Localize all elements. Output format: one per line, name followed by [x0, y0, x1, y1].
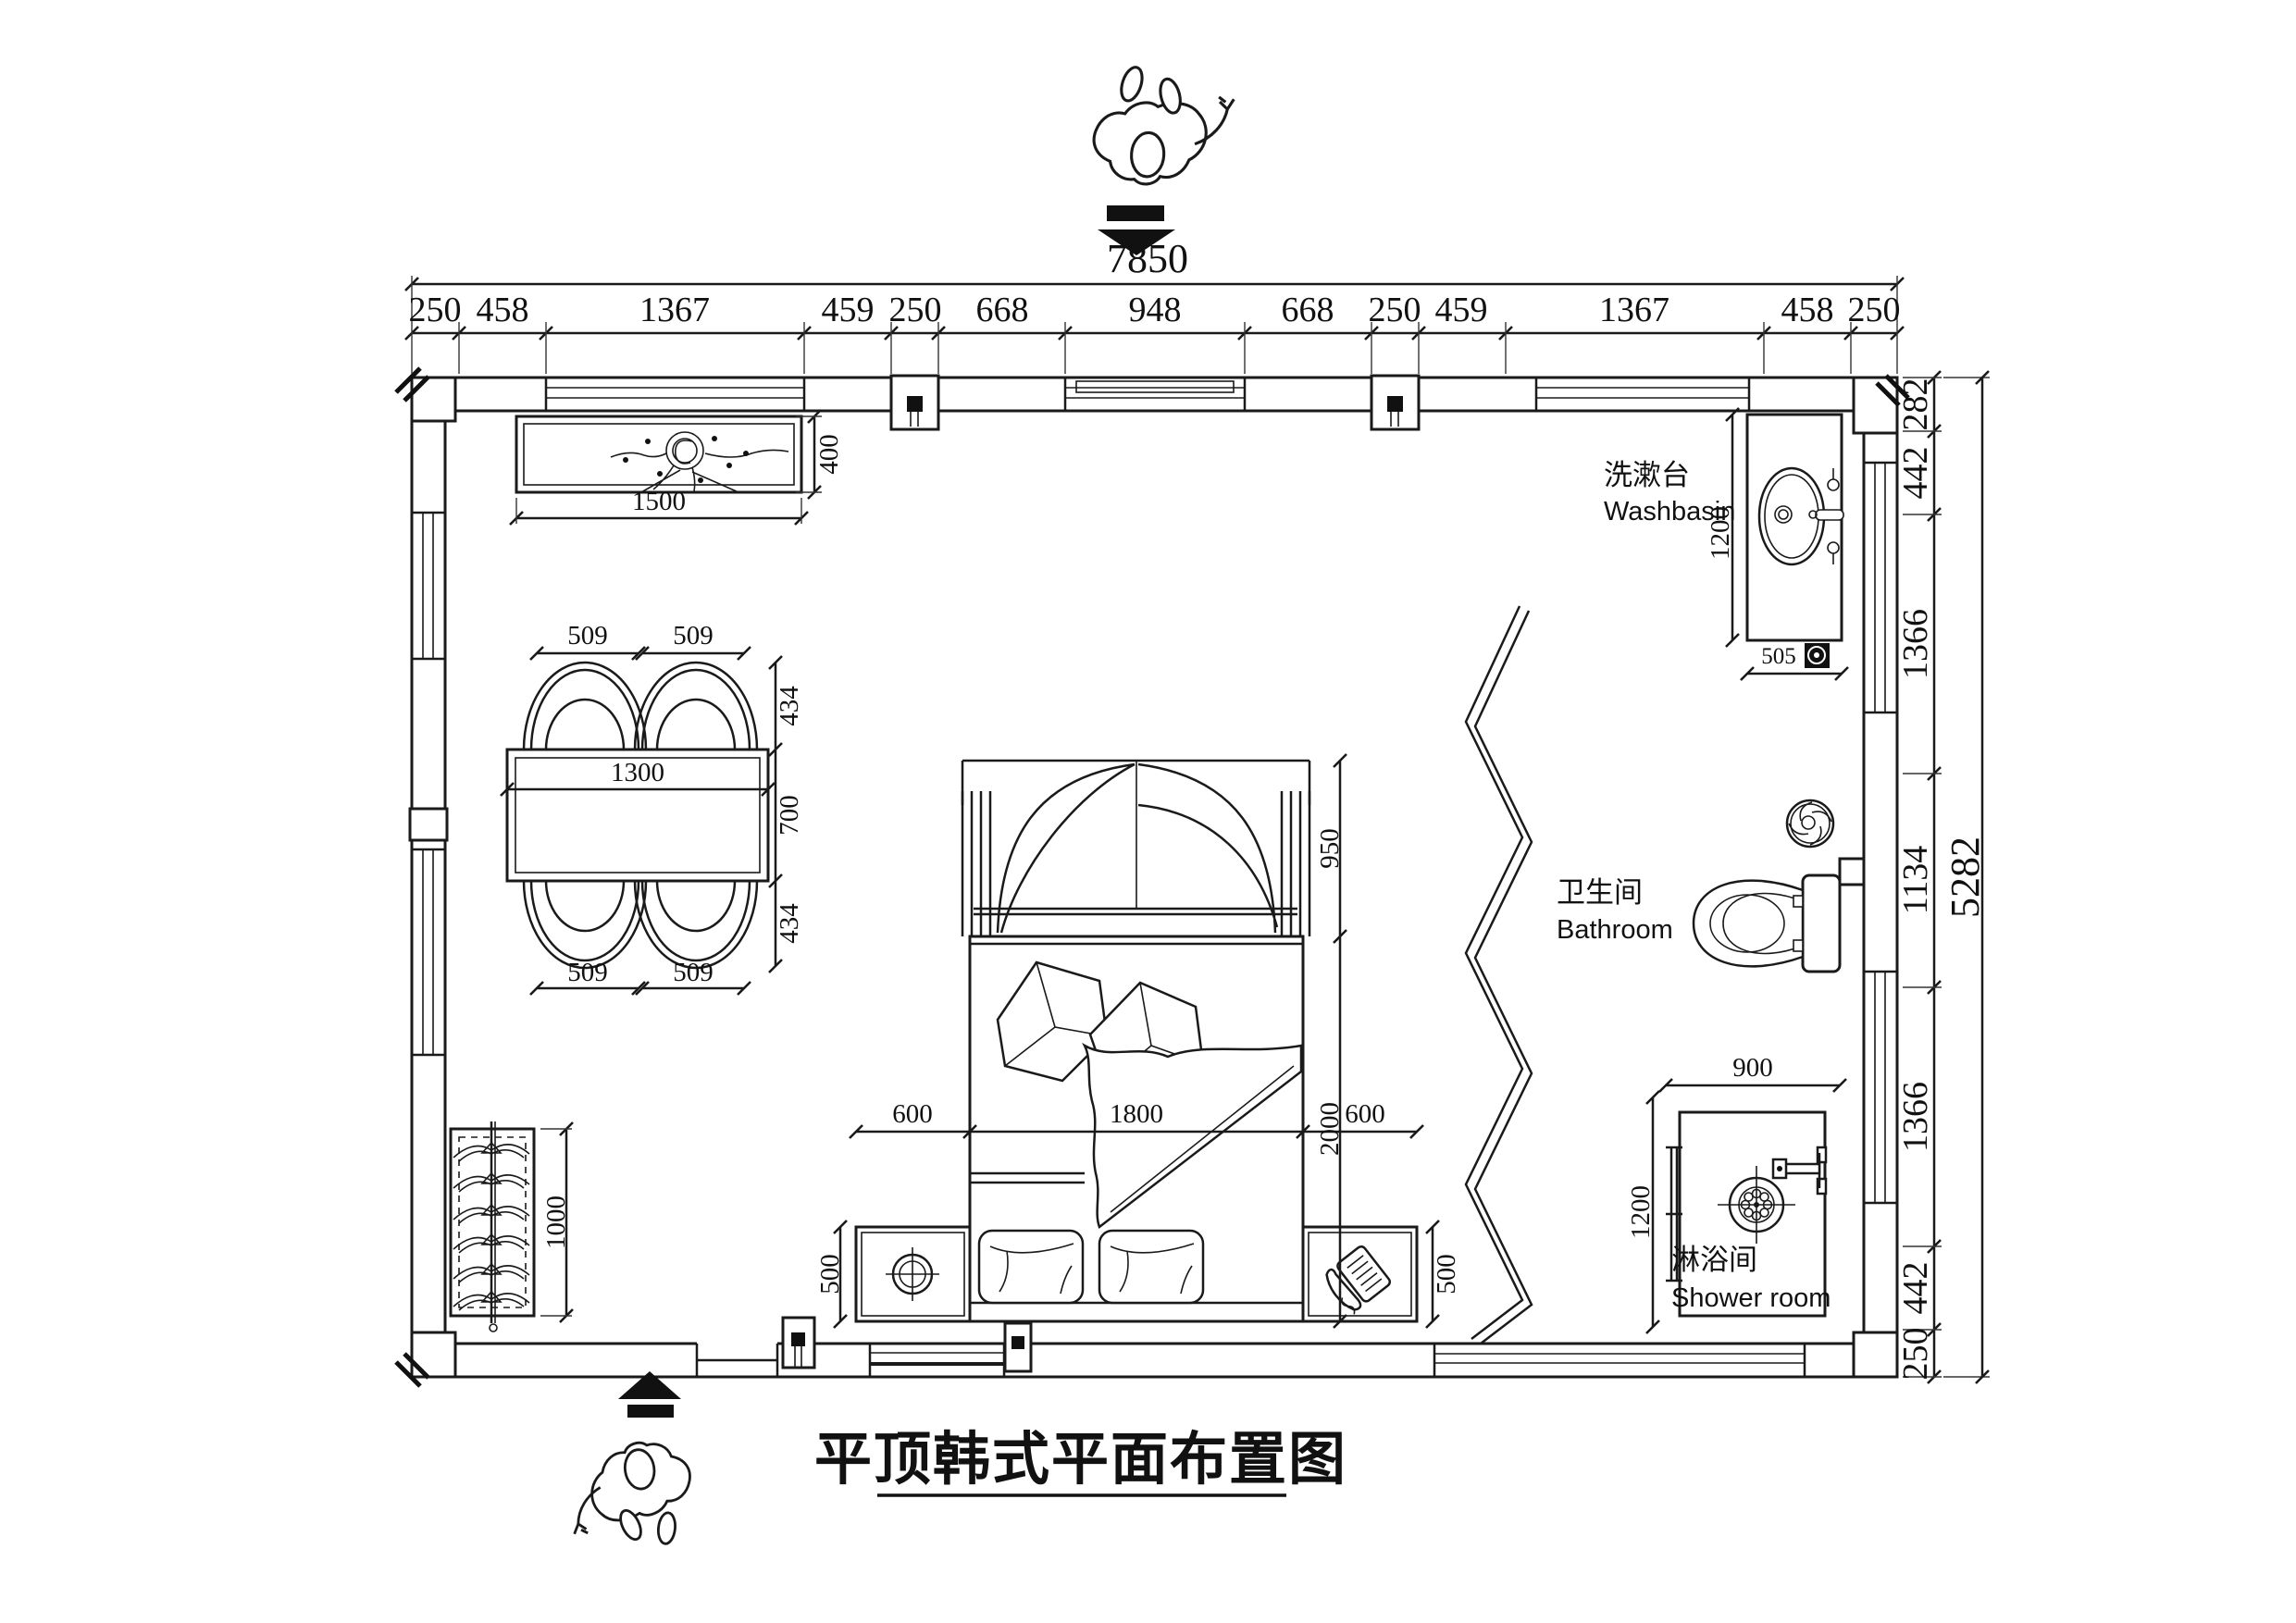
dim-counter-width: 1500 [632, 487, 686, 516]
dim-bed-width: 1800 [1110, 1099, 1163, 1129]
room-label-bathroom-en: Bathroom [1557, 915, 1673, 945]
dim-top-5: 668 [976, 291, 1029, 329]
dim-canopy: 950 [1315, 828, 1345, 869]
room-label-shower-en: Shower room [1671, 1283, 1831, 1313]
floor-plan-page: 7850 250 458 1367 459 250 668 948 668 25… [0, 0, 2296, 1623]
dim-top-7: 668 [1282, 291, 1334, 329]
dim-top-0: 250 [409, 291, 462, 329]
pier-bottom-a [783, 1318, 814, 1368]
dim-chair-depth: 434 [775, 903, 804, 944]
room-label-washbasin-zh: 洗漱台 [1604, 459, 1690, 491]
dim-table-depth: 700 [775, 795, 804, 836]
dim-right-4: 1366 [1896, 1082, 1935, 1152]
dim-top-3: 459 [822, 291, 875, 329]
pillow [979, 1231, 1083, 1303]
dim-right-2: 1366 [1896, 609, 1935, 679]
corner-pier-top-left [396, 368, 455, 421]
dim-top-4: 250 [889, 291, 942, 329]
dim-chair-pitch: 509 [673, 958, 714, 987]
dim-top-chain: 7850 250 458 1367 459 250 668 948 668 25… [405, 236, 1904, 374]
dim-right-0: 282 [1896, 378, 1935, 431]
dim-top-11: 458 [1781, 291, 1834, 329]
pier-top-a [891, 376, 938, 429]
dim-counter-depth: 400 [814, 434, 844, 475]
corner-pier-bottom-right [1854, 1332, 1897, 1377]
dim-chair-depth: 434 [775, 686, 804, 726]
dim-right-6: 250 [1896, 1328, 1935, 1381]
room-label-washbasin-en: Washbasin [1604, 497, 1735, 527]
dim-chair-pitch: 509 [567, 958, 608, 987]
person-figure-top [1091, 63, 1235, 190]
dim-shower-depth: 1200 [1626, 1185, 1656, 1239]
pier-left-wall [410, 809, 447, 840]
pillow [1099, 1231, 1203, 1303]
dim-right-3: 1134 [1896, 846, 1935, 915]
pier-bottom-b [1005, 1323, 1031, 1371]
floor-drain-icon [1805, 643, 1830, 668]
dim-top-9: 459 [1435, 291, 1488, 329]
corner-pier-bottom-left [396, 1332, 455, 1386]
dim-top-6: 948 [1129, 291, 1182, 329]
dim-top-12: 250 [1848, 291, 1901, 329]
dim-top-1: 458 [477, 291, 529, 329]
dim-top-2: 1367 [639, 291, 710, 329]
toilet-icon [1694, 875, 1840, 972]
nightstand-right [1303, 1227, 1417, 1321]
dim-chair-pitch: 509 [567, 621, 608, 650]
dim-right-chain: 282 442 1366 1134 1366 442 250 5282 [1896, 371, 1990, 1383]
bed [970, 936, 1303, 1321]
entry-door-bottom [697, 1341, 777, 1377]
person-figure-bottom [563, 1436, 699, 1558]
dim-nightstand: 500 [1432, 1254, 1461, 1295]
nightstand-left [856, 1227, 970, 1321]
dim-total-height: 5282 [1942, 836, 1988, 918]
dim-bed-side: 600 [892, 1099, 933, 1129]
dim-bed-len: 2000 [1315, 1102, 1345, 1156]
room-label-bathroom-zh: 卫生间 [1557, 876, 1643, 909]
floor-plan-svg: 7850 250 458 1367 459 250 668 948 668 25… [0, 0, 2296, 1623]
dim-bed-side: 600 [1345, 1099, 1385, 1129]
dim-top-10: 1367 [1599, 291, 1669, 329]
dim-nightstand: 500 [815, 1254, 845, 1295]
pier-top-b [1371, 376, 1419, 429]
dim-chair-pitch: 509 [673, 621, 714, 650]
dim-basin-width: 505 [1761, 644, 1796, 669]
room-label-shower-zh: 淋浴间 [1671, 1244, 1757, 1276]
dim-right-1: 442 [1896, 447, 1935, 500]
title-text: 平顶韩式平面布置图 [814, 1428, 1347, 1492]
dim-table-width: 1300 [611, 758, 664, 787]
drawing-title: 平顶韩式平面布置图 [814, 1428, 1347, 1495]
dim-right-5: 442 [1896, 1262, 1935, 1315]
pier-right-wall [1840, 859, 1864, 885]
dim-shower-width: 900 [1732, 1053, 1773, 1083]
dim-top-8: 250 [1369, 291, 1421, 329]
dim-wardrobe: 1000 [541, 1196, 571, 1249]
